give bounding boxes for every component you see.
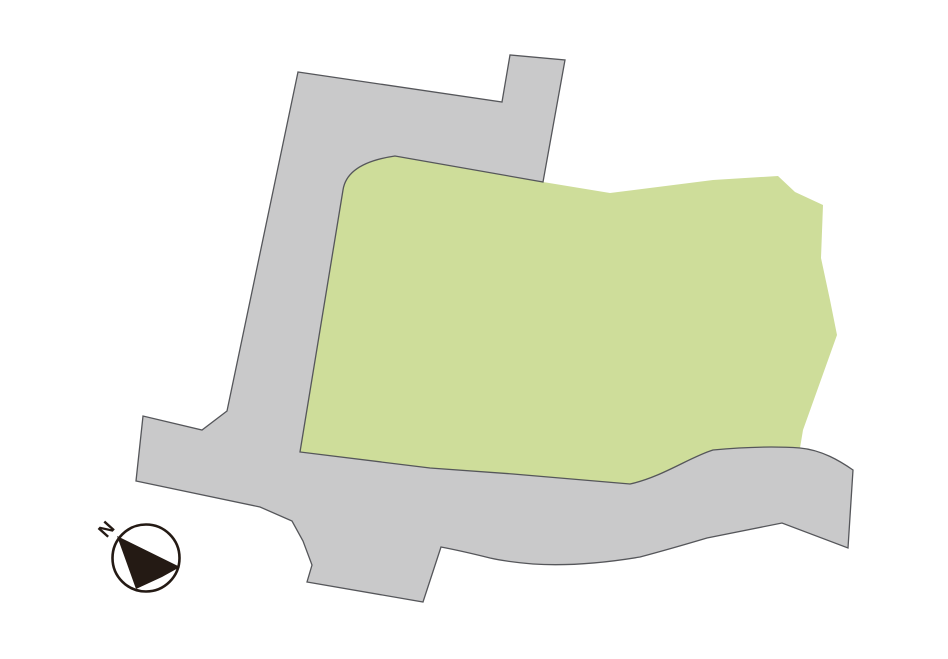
- north-compass: N: [95, 518, 180, 592]
- north-label: N: [95, 518, 120, 542]
- site-plan-svg: N: [0, 0, 948, 659]
- site-plan-canvas: N: [0, 0, 948, 659]
- land-parcel-shape: [300, 156, 837, 484]
